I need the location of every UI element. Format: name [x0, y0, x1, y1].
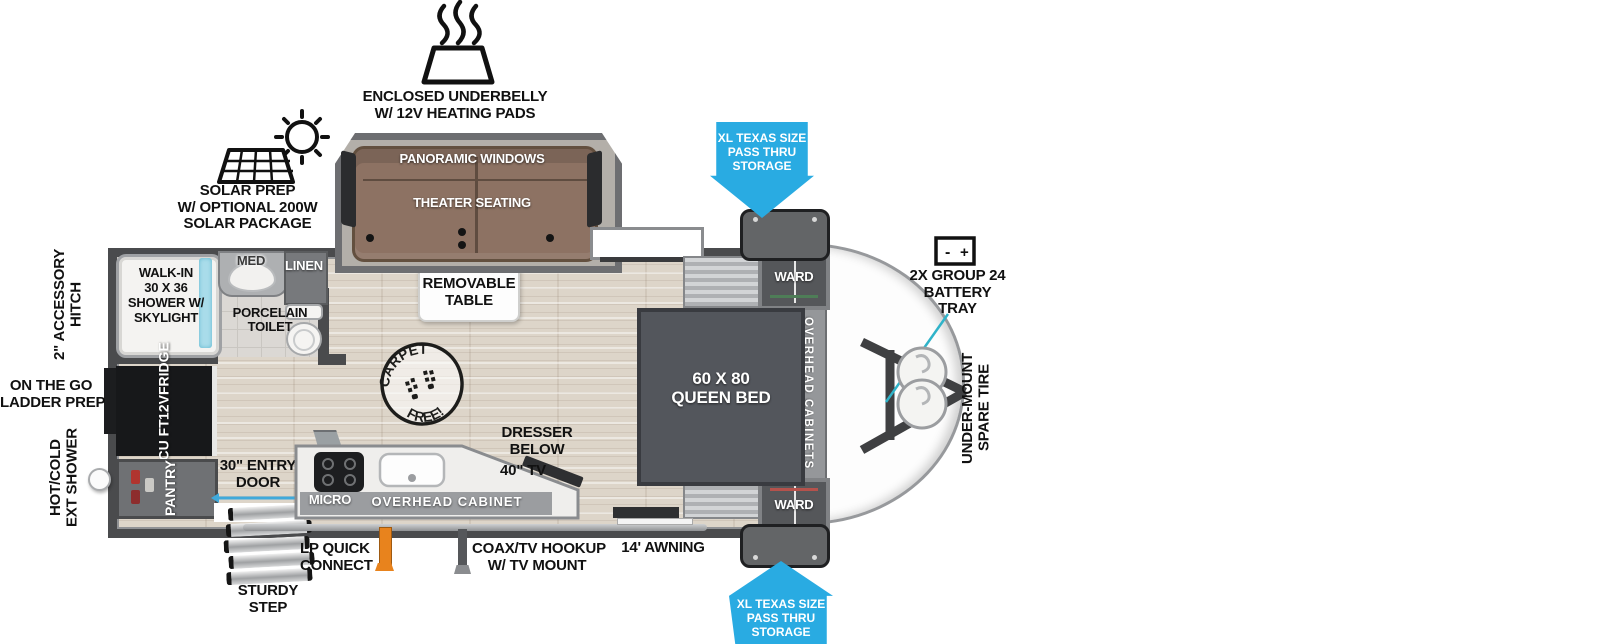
pantry: PANTRY [116, 459, 218, 519]
med-label: MED [222, 254, 280, 268]
svg-text:+: + [960, 244, 969, 261]
ladder-prep-label: ON THE GO LADDER PREP [0, 378, 102, 411]
ext-shower-label: HOT/COLD EXT SHOWER [48, 425, 81, 530]
pantry-item [131, 470, 140, 484]
window-sill [600, 257, 688, 262]
nightstand-top [683, 256, 763, 308]
awning-bar [243, 524, 707, 531]
fridge-label: 10 CU FT 12V FRIDGE [116, 366, 212, 456]
cupholder [458, 241, 466, 249]
tongue-and-battery-graphic [830, 300, 1030, 520]
linen-label: LINEN [282, 259, 326, 273]
rear-wall-vent [104, 368, 116, 434]
fridge: 10 CU FT 12V FRIDGE [116, 366, 217, 456]
svg-text:-: - [945, 244, 950, 261]
pantry-item [145, 478, 154, 492]
table-label: TABLE [445, 293, 493, 310]
ward-label: WARD [762, 270, 826, 284]
toilet-label: PORCELAIN TOILET [222, 306, 318, 335]
bottom-wall-window [613, 507, 679, 518]
bed-label: 60 X 80 QUEEN BED [641, 370, 801, 407]
lp-label: LP QUICK CONNECT [300, 541, 380, 574]
pantry-label: PANTRY [157, 462, 183, 516]
overhead-cabinet-label: OVERHEAD CABINET [352, 495, 542, 509]
pass-thru-door-bottom [740, 524, 830, 568]
solar-prep-label: SOLAR PREP W/ OPTIONAL 200W SOLAR PACKAG… [160, 183, 335, 233]
shower-label: WALK-IN 30 X 36 SHOWER W/ SKYLIGHT [116, 266, 216, 326]
theater-seating-label: THEATER SEATING [352, 196, 592, 210]
solar-prep-icon [195, 105, 330, 187]
pass-thru-arrow-bottom: XL TEXAS SIZE PASS THRU STORAGE [729, 561, 833, 644]
tv-label: 40" TV [488, 463, 558, 480]
lp-quick-connect-icon [379, 527, 392, 567]
pantry-item [131, 490, 140, 504]
battery-tray-label: 2X GROUP 24 BATTERY TRAY [900, 268, 1015, 318]
micro-label: MICRO [300, 493, 360, 507]
awning-roller [617, 518, 693, 525]
pass-thru-arrow-top: XL TEXAS SIZE PASS THRU STORAGE [710, 122, 814, 218]
ext-shower-port [88, 468, 111, 491]
sturdy-step-label: STURDY STEP [222, 583, 314, 616]
battery-pair [898, 348, 946, 428]
ward-label: WARD [762, 498, 826, 512]
coax-hookup-icon [458, 529, 467, 567]
awning-label: 14' AWNING [608, 540, 718, 557]
coax-tip [454, 565, 471, 574]
carpet-free-stamp: CARPET FREE! [378, 340, 466, 428]
underbelly-label: ENCLOSED UNDERBELLY W/ 12V HEATING PADS [350, 89, 560, 122]
spare-tire-label: UNDER-MOUNT SPARE TIRE [960, 328, 993, 488]
coax-label: COAX/TV HOOKUP W/ TV MOUNT [472, 541, 602, 574]
panoramic-windows-label: PANORAMIC WINDOWS [352, 152, 592, 166]
heating-pads-icon [408, 0, 508, 90]
cupholder [546, 234, 554, 242]
table-label: REMOVABLE [423, 276, 516, 293]
cupholder [366, 234, 374, 242]
queen-bed: 60 X 80 QUEEN BED [637, 308, 805, 486]
hitch-label: 2" ACCESSORY HITCH [52, 242, 85, 367]
cupholder [458, 228, 466, 236]
cooktop [314, 452, 364, 492]
pass-thru-door-top [740, 209, 830, 261]
dresser-label: DRESSER BELOW [492, 425, 582, 458]
battery-icon: - + [934, 236, 976, 266]
rv-floorplan-diagram: { "exterior": { "underbelly": ["ENCLOSED… [0, 0, 1600, 644]
